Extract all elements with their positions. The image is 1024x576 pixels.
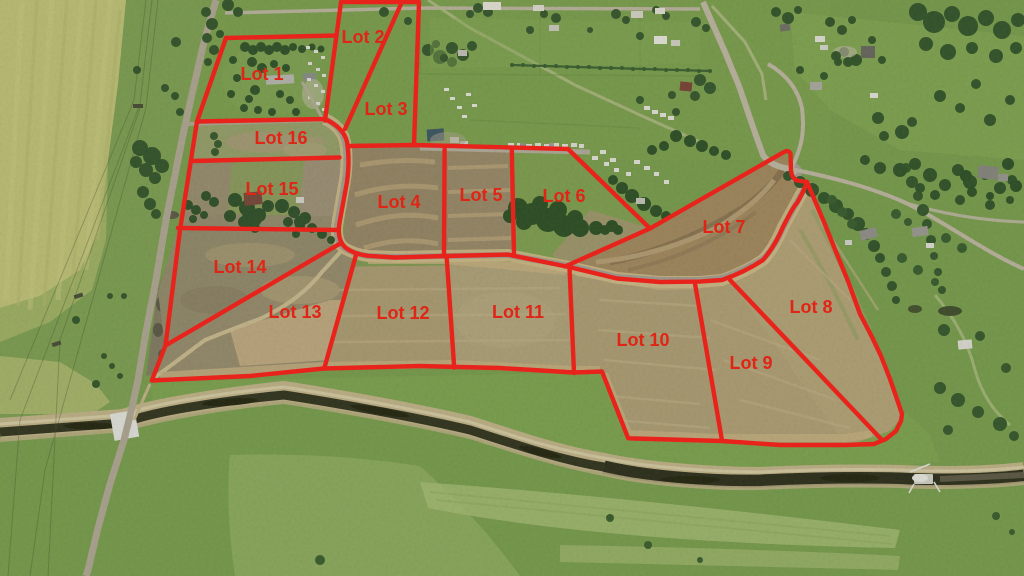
svg-text:Lot 12: Lot 12 — [376, 303, 429, 323]
svg-text:Lot 10: Lot 10 — [616, 330, 669, 350]
svg-text:Lot 4: Lot 4 — [378, 192, 421, 212]
svg-text:Lot 15: Lot 15 — [245, 179, 298, 199]
svg-text:Lot 7: Lot 7 — [703, 217, 746, 237]
svg-text:Lot 16: Lot 16 — [254, 128, 307, 148]
svg-text:Lot 14: Lot 14 — [213, 257, 266, 277]
svg-text:Lot 8: Lot 8 — [790, 297, 833, 317]
svg-text:Lot 13: Lot 13 — [268, 302, 321, 322]
svg-text:Lot 2: Lot 2 — [342, 27, 385, 47]
svg-text:Lot 3: Lot 3 — [365, 99, 408, 119]
svg-text:Lot 5: Lot 5 — [460, 185, 503, 205]
svg-text:Lot 9: Lot 9 — [730, 353, 773, 373]
svg-text:Lot 1: Lot 1 — [241, 64, 284, 84]
svg-text:Lot 6: Lot 6 — [543, 186, 586, 206]
svg-text:Lot 11: Lot 11 — [492, 302, 544, 322]
